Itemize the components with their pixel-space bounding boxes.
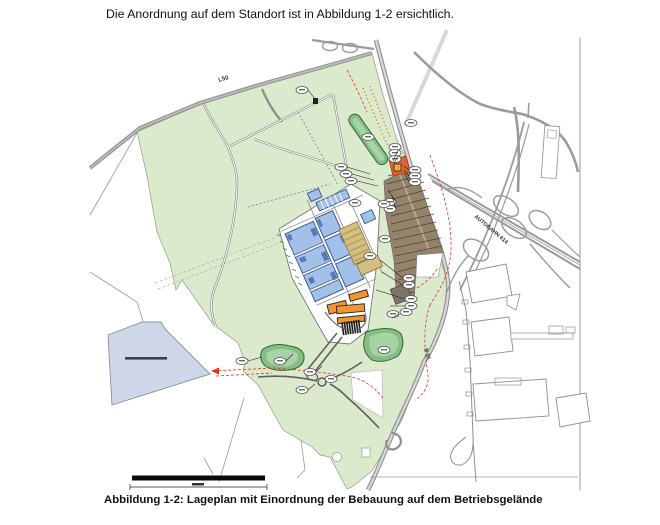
svg-text:L50: L50 [218,75,230,84]
